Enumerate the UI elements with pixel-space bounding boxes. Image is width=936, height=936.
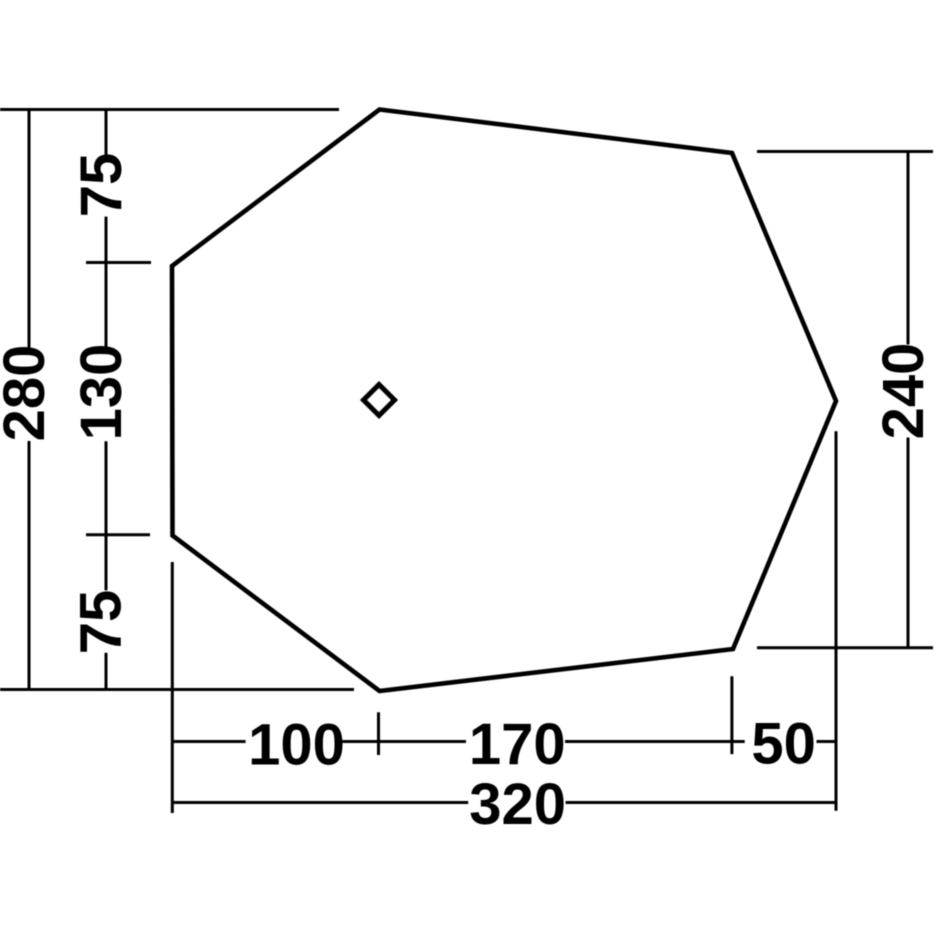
svg-text:240: 240	[871, 343, 936, 440]
svg-text:75: 75	[69, 153, 134, 218]
svg-text:75: 75	[69, 590, 134, 655]
svg-text:130: 130	[69, 344, 134, 441]
svg-text:50: 50	[751, 712, 816, 777]
svg-text:170: 170	[469, 712, 566, 777]
svg-text:320: 320	[469, 772, 566, 837]
svg-text:100: 100	[248, 713, 345, 778]
svg-text:280: 280	[0, 345, 57, 442]
